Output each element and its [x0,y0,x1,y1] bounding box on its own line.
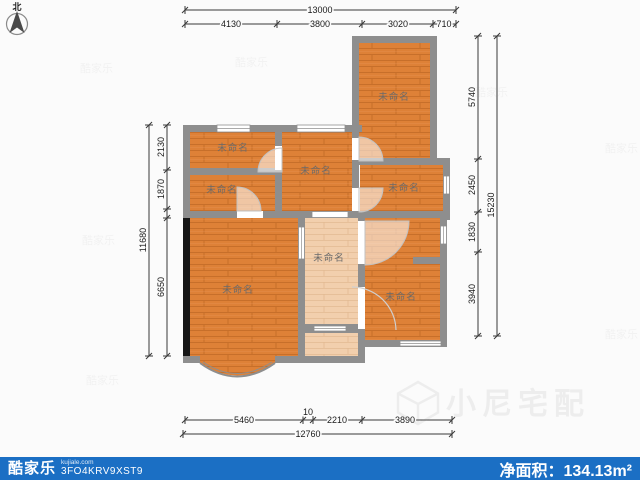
svg-text:2210: 2210 [327,415,347,425]
svg-text:3800: 3800 [310,19,330,29]
kujiale-logo: 酷家乐 [8,461,56,476]
svg-text:5740: 5740 [467,87,477,107]
door-gap-hall-entry [358,221,365,264]
dim-right-segments: 5740 2450 1830 3940 [467,33,482,339]
net-area-label: 净面积： [499,457,563,480]
dim-right-total: 15230 [486,33,501,339]
room-hall-label[interactable]: 未命名 [313,252,345,264]
watermark: 小尼宅配 [398,382,590,424]
brand-block: 酷家乐 kujiale.com 3FO4KRV9XST9 [8,460,143,478]
net-area-value: 134.13 [564,463,613,480]
room-left-small-label[interactable]: 未命名 [206,184,238,196]
window-mid-right [444,176,450,194]
window-hall-side [299,227,305,259]
wall-left-lower-black [183,218,190,363]
svg-text:13000: 13000 [307,5,332,15]
net-area: 净面积： 134.13 m² [499,457,632,480]
footer-bar: 酷家乐 kujiale.com 3FO4KRV9XST9 净面积： 134.13… [0,457,640,480]
room-mid-right-label[interactable]: 未命名 [388,182,420,194]
floorplan-page: 酷家乐 酷家乐 酷家乐 酷家乐 酷家乐 酷家乐 酷家乐 北 [0,0,640,480]
wall-bottom-right-seg [275,356,365,363]
kujiale-domain: kujiale.com [61,460,143,467]
svg-text:酷家乐: 酷家乐 [80,61,113,75]
floorplan-canvas: 酷家乐 酷家乐 酷家乐 酷家乐 酷家乐 酷家乐 酷家乐 北 [0,0,640,457]
dim-top-segments: 4130 3800 3020 710 [182,19,459,29]
door-gap-mid-right-room [352,188,359,211]
svg-text:1870: 1870 [156,179,166,199]
dim-bottom-total: 12760 [180,429,455,439]
window-top-1 [217,125,250,132]
svg-text:15230: 15230 [486,192,496,217]
svg-text:2130: 2130 [156,137,166,157]
svg-text:3020: 3020 [388,19,408,29]
dim-left-segments: 2130 1870 6650 [156,122,171,359]
window-hall-bottom [314,326,346,331]
svg-text:酷家乐: 酷家乐 [235,55,268,69]
svg-text:酷家乐: 酷家乐 [605,141,638,155]
net-area-unit: m² [612,463,632,480]
svg-text:1830: 1830 [467,222,477,242]
svg-text:酷家乐: 酷家乐 [86,373,119,387]
room-living-label[interactable]: 未命名 [300,165,332,177]
plan-code: 3FO4KRV9XST9 [61,467,143,477]
door-gap-left-small-room [237,211,263,218]
wall-bottom-left-seg [183,356,200,363]
wall-topright-right [430,43,437,158]
svg-text:4130: 4130 [221,19,241,29]
svg-text:酷家乐: 酷家乐 [475,85,508,99]
wall-top-right-top [352,36,437,43]
window-top-2 [297,125,345,132]
north-compass: 北 [7,1,28,35]
opening-living-hall [312,212,348,218]
svg-text:12760: 12760 [295,429,320,439]
room-top-left-label[interactable]: 未命名 [217,142,249,154]
svg-text:11680: 11680 [138,228,148,252]
dim-left-total: 11680 [138,122,153,359]
room-bottom-left-label[interactable]: 未命名 [222,284,254,296]
bay-floor [200,356,275,363]
vestibule-floor[interactable] [305,333,358,356]
svg-text:5460: 5460 [234,415,254,425]
svg-text:酷家乐: 酷家乐 [82,233,115,247]
room-top-right-label[interactable]: 未命名 [378,91,410,103]
door-gap-top-right-room [352,138,359,160]
window-bottom-right [400,341,441,346]
dim-top-total: 13000 [182,5,459,15]
room-bottom-right-label[interactable]: 未命名 [385,291,417,303]
door-gap-hall-lower [358,287,365,329]
svg-text:酷家乐: 酷家乐 [605,327,638,341]
window-right-lower [441,226,447,244]
svg-text:3940: 3940 [467,284,477,304]
watermark-text: 小尼宅配 [446,387,590,421]
svg-text:10: 10 [303,407,313,417]
svg-text:2450: 2450 [467,175,477,195]
svg-text:710: 710 [436,19,451,29]
wall-stub-right [413,257,447,264]
svg-text:6650: 6650 [156,277,166,297]
room-hall-floor[interactable] [305,218,358,324]
north-label: 北 [12,1,21,12]
